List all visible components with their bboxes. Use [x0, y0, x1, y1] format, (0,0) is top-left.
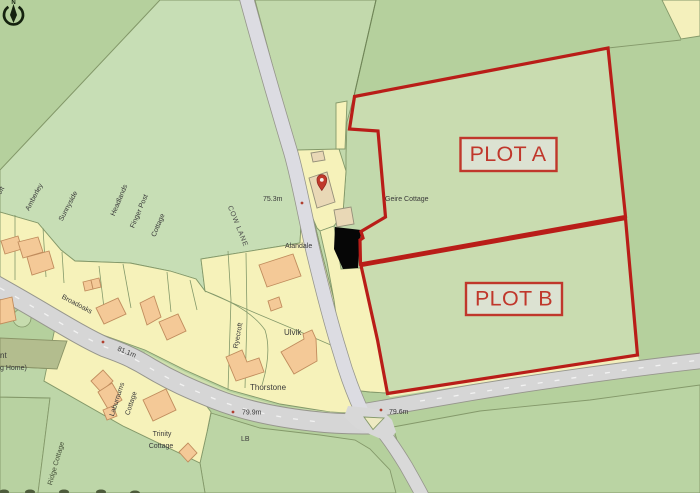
svg-text:nt: nt — [0, 351, 7, 360]
svg-text:Geire Cottage: Geire Cottage — [385, 196, 429, 203]
svg-text:N: N — [11, 0, 15, 6]
svg-text:Trinity: Trinity — [153, 431, 172, 438]
svg-text:79.9m: 79.9m — [242, 410, 262, 417]
svg-text:Thorstone: Thorstone — [250, 383, 287, 392]
svg-text:79.6m: 79.6m — [389, 409, 409, 416]
svg-text:PLOT A: PLOT A — [470, 142, 547, 166]
svg-text:Cottage: Cottage — [149, 443, 174, 450]
svg-text:PLOT B: PLOT B — [475, 287, 553, 311]
svg-text:Ulvik: Ulvik — [284, 328, 302, 337]
svg-text:g Home): g Home) — [0, 365, 27, 372]
svg-text:LB: LB — [241, 436, 250, 443]
svg-text:75.3m: 75.3m — [263, 196, 283, 203]
svg-text:Alandale: Alandale — [285, 243, 312, 250]
